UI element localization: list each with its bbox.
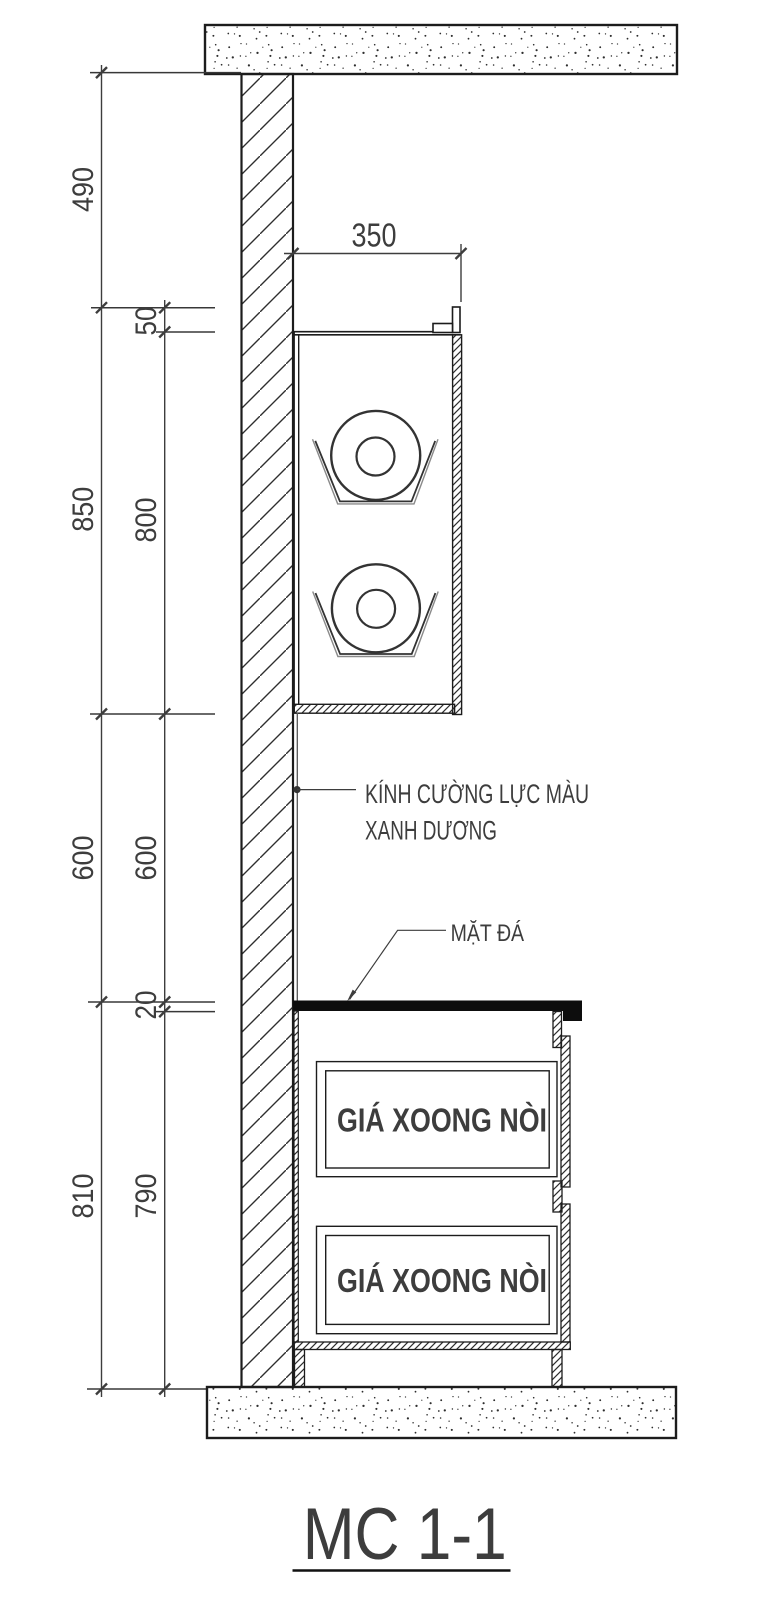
- svg-text:MẶT ĐÁ: MẶT ĐÁ: [451, 920, 524, 947]
- svg-text:KÍNH CƯỜNG LỰC MÀU: KÍNH CƯỜNG LỰC MÀU: [365, 778, 589, 809]
- svg-text:GIÁ XOONG NÒI: GIÁ XOONG NÒI: [337, 1102, 547, 1139]
- svg-text:600: 600: [67, 836, 100, 881]
- svg-text:GIÁ XOONG NÒI: GIÁ XOONG NÒI: [337, 1262, 547, 1299]
- svg-text:810: 810: [67, 1174, 100, 1219]
- svg-text:800: 800: [130, 498, 163, 543]
- svg-text:790: 790: [130, 1174, 163, 1219]
- svg-text:600: 600: [130, 836, 163, 881]
- svg-text:350: 350: [352, 217, 397, 254]
- svg-text:50: 50: [130, 307, 163, 336]
- svg-text:20: 20: [130, 991, 163, 1020]
- svg-text:MC 1-1: MC 1-1: [303, 1494, 507, 1575]
- svg-text:850: 850: [67, 487, 100, 532]
- svg-text:490: 490: [67, 167, 100, 212]
- svg-text:XANH DƯƠNG: XANH DƯƠNG: [365, 816, 497, 846]
